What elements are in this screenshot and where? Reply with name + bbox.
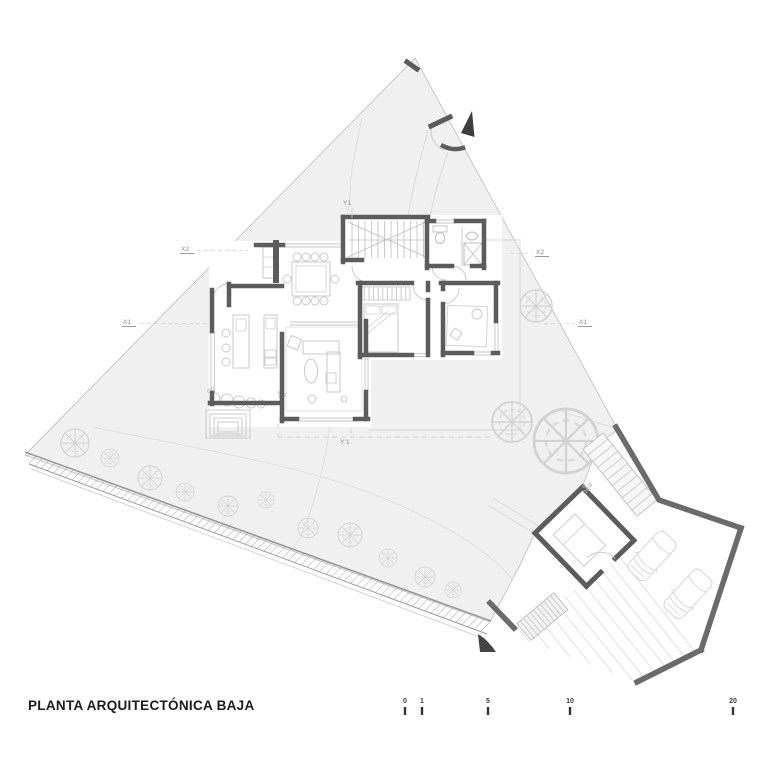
scale-tick-label: 5 [486,698,490,705]
floor-plan-drawing: X1 X1 X2 X2 Y1 Y'1 PLANTA ARQUITECTÓNICA… [0,0,768,768]
axis-label-x2-right: X2 [536,249,545,256]
scale-bar: 0 1 5 10 20 [403,698,737,715]
parked-cars [623,527,716,623]
entrance-marker-icon [478,634,496,652]
entry-steps [517,593,568,641]
scale-tick-label: 1 [420,698,424,705]
north-arrow-icon [461,111,475,137]
tree-icon [61,429,89,457]
scale-tick-label: 10 [566,698,574,705]
axis-label-x1-left: X1 [123,319,132,326]
floor-plan-sheet: X1 X1 X2 X2 Y1 Y'1 PLANTA ARQUITECTÓNICA… [0,0,768,768]
axis-label-y-bottom: Y'1 [340,439,350,446]
scale-tick-label: 20 [729,698,737,705]
axis-label-y-top: Y1 [343,200,352,207]
car-icon [659,565,716,623]
scale-tick-label: 0 [403,698,407,705]
axis-label-x1-right: X1 [579,319,588,326]
sheet-title: PLANTA ARQUITECTÓNICA BAJA [28,698,255,713]
axis-label-x2-left: X2 [181,246,190,253]
closet [362,287,410,300]
